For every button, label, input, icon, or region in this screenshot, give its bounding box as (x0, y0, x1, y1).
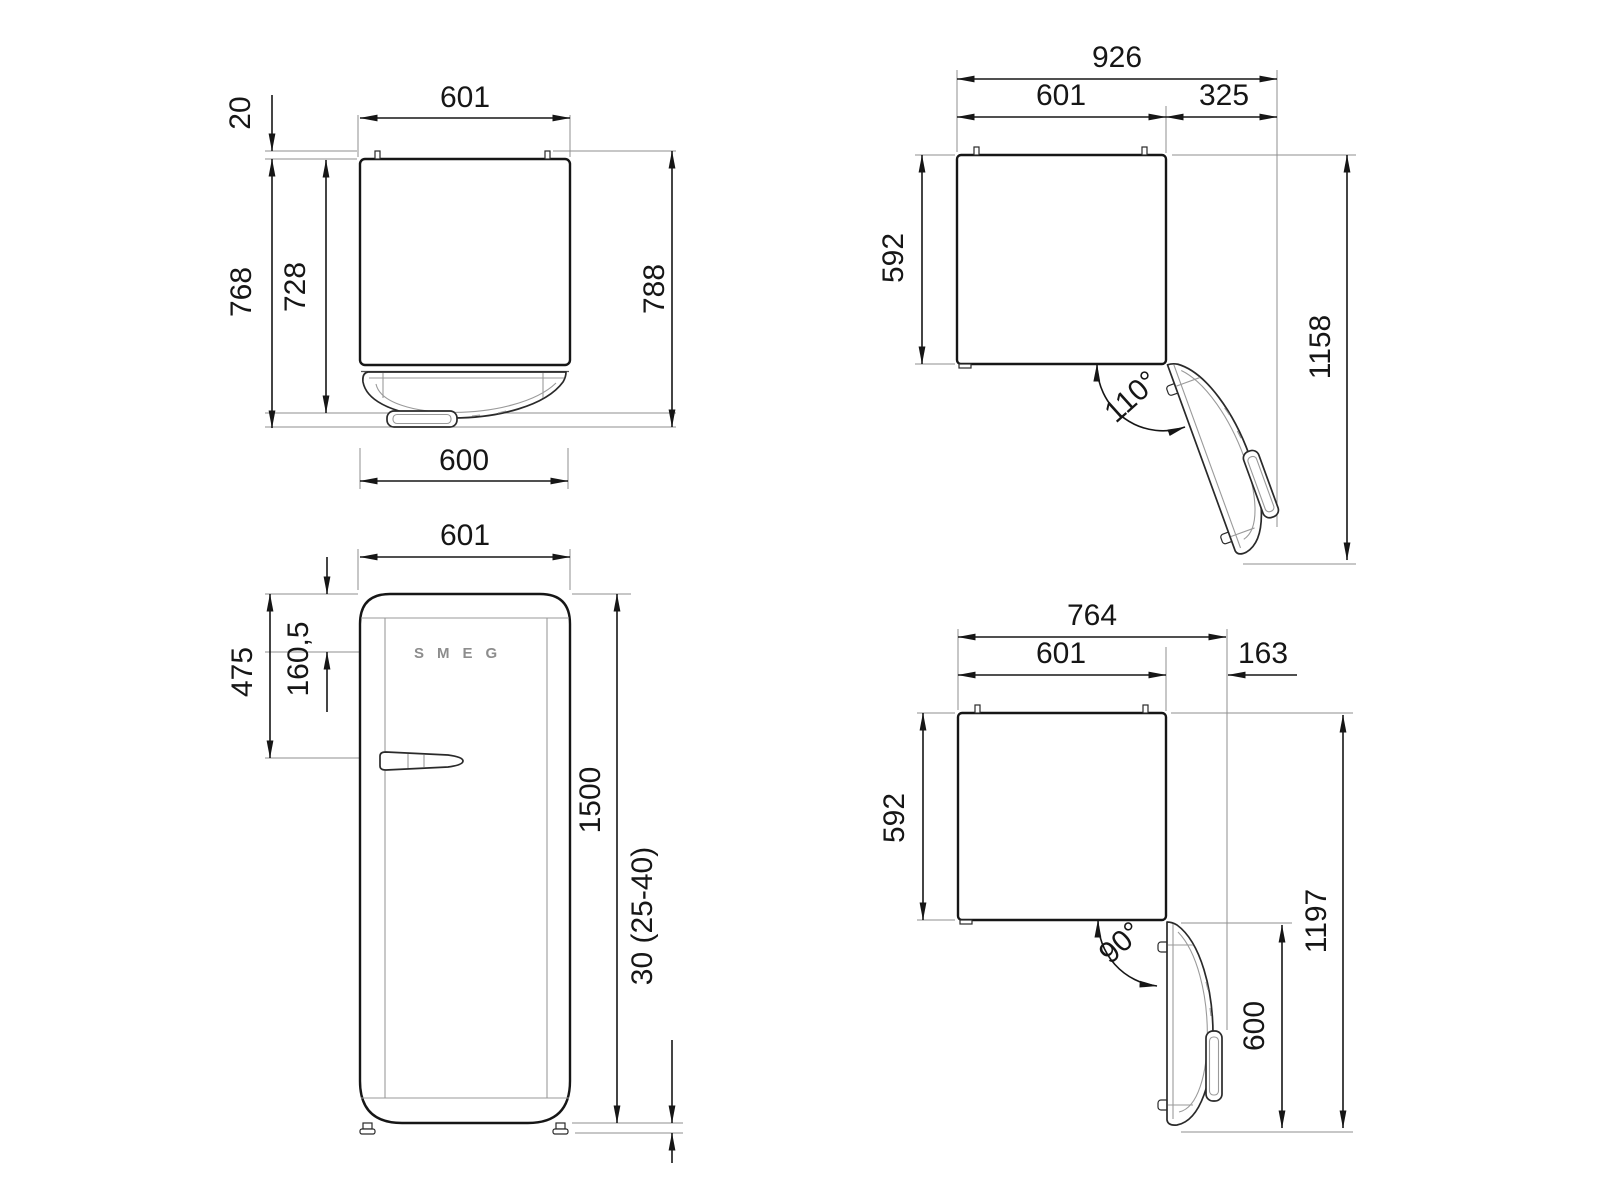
dim-body-depth-label: 592 (877, 233, 910, 283)
dim-width-label: 601 (440, 81, 490, 114)
dim-body-width-label: 601 (1036, 637, 1086, 670)
dim-door-width-label: 600 (1238, 1001, 1271, 1051)
rear-wall-spacer (974, 147, 979, 155)
dim-handle-offset-label: 475 (226, 647, 259, 697)
view-top-open-90: 764 601 163 592 1197 600 90° (878, 599, 1353, 1132)
door-open-110 (1168, 346, 1289, 556)
dim-body-depth-label: 592 (878, 793, 911, 843)
opening-angle-label: 90° (1093, 915, 1149, 970)
dim-body-width-label: 601 (1036, 79, 1086, 112)
rear-wall-spacer (1142, 147, 1147, 155)
rear-wall-spacer (375, 151, 380, 159)
adjustable-feet (360, 1123, 568, 1134)
hinge-foot (959, 364, 971, 368)
dim-overall-width-label: 764 (1067, 599, 1117, 632)
cabinet-top-view (360, 159, 570, 365)
opening-angle-label: 110° (1098, 365, 1165, 430)
door-handle-front (380, 752, 463, 770)
hinge-foot (960, 920, 972, 924)
dim-door-projection-label: 325 (1199, 79, 1249, 112)
dim-overall-width-label: 926 (1092, 41, 1142, 74)
dim-depth-to-door-label: 728 (279, 262, 312, 312)
rear-wall-spacer (545, 151, 550, 159)
dim-width-label: 601 (440, 519, 490, 552)
dim-rear-spacer-label: 20 (224, 96, 257, 129)
page: 601 20 768 728 788 600 (0, 0, 1600, 1200)
cabinet-top-view (958, 713, 1166, 920)
cabinet-top-view (957, 155, 1166, 364)
view-top-closed: 601 20 768 728 788 600 (224, 81, 676, 489)
refrigerator-dimension-drawing: 601 20 768 728 788 600 (0, 0, 1600, 1200)
dim-depth-to-handle-label: 768 (225, 267, 258, 317)
dim-logo-offset-label: 160,5 (282, 621, 315, 696)
cabinet-front-view (360, 594, 570, 1123)
dim-depth-overall-label: 788 (638, 264, 671, 314)
dim-height-label: 1500 (574, 767, 607, 834)
view-front: SMEG 601 475 160,5 1500 30 (25-40) (226, 519, 683, 1163)
door-open-90 (1167, 922, 1222, 1125)
view-top-open-110: 926 601 325 592 1158 110° (877, 41, 1356, 564)
dim-door-projection-label: 163 (1238, 637, 1288, 670)
brand-logo-text: SMEG (414, 645, 510, 662)
dim-door-width-label: 600 (439, 444, 489, 477)
dim-feet-height-label: 30 (25-40) (626, 847, 659, 985)
dim-overall-depth-label: 1197 (1300, 889, 1333, 954)
door-closed (363, 372, 566, 427)
rear-wall-spacer (975, 705, 980, 713)
rear-wall-spacer (1143, 705, 1148, 713)
dim-overall-depth-label: 1158 (1304, 315, 1337, 380)
